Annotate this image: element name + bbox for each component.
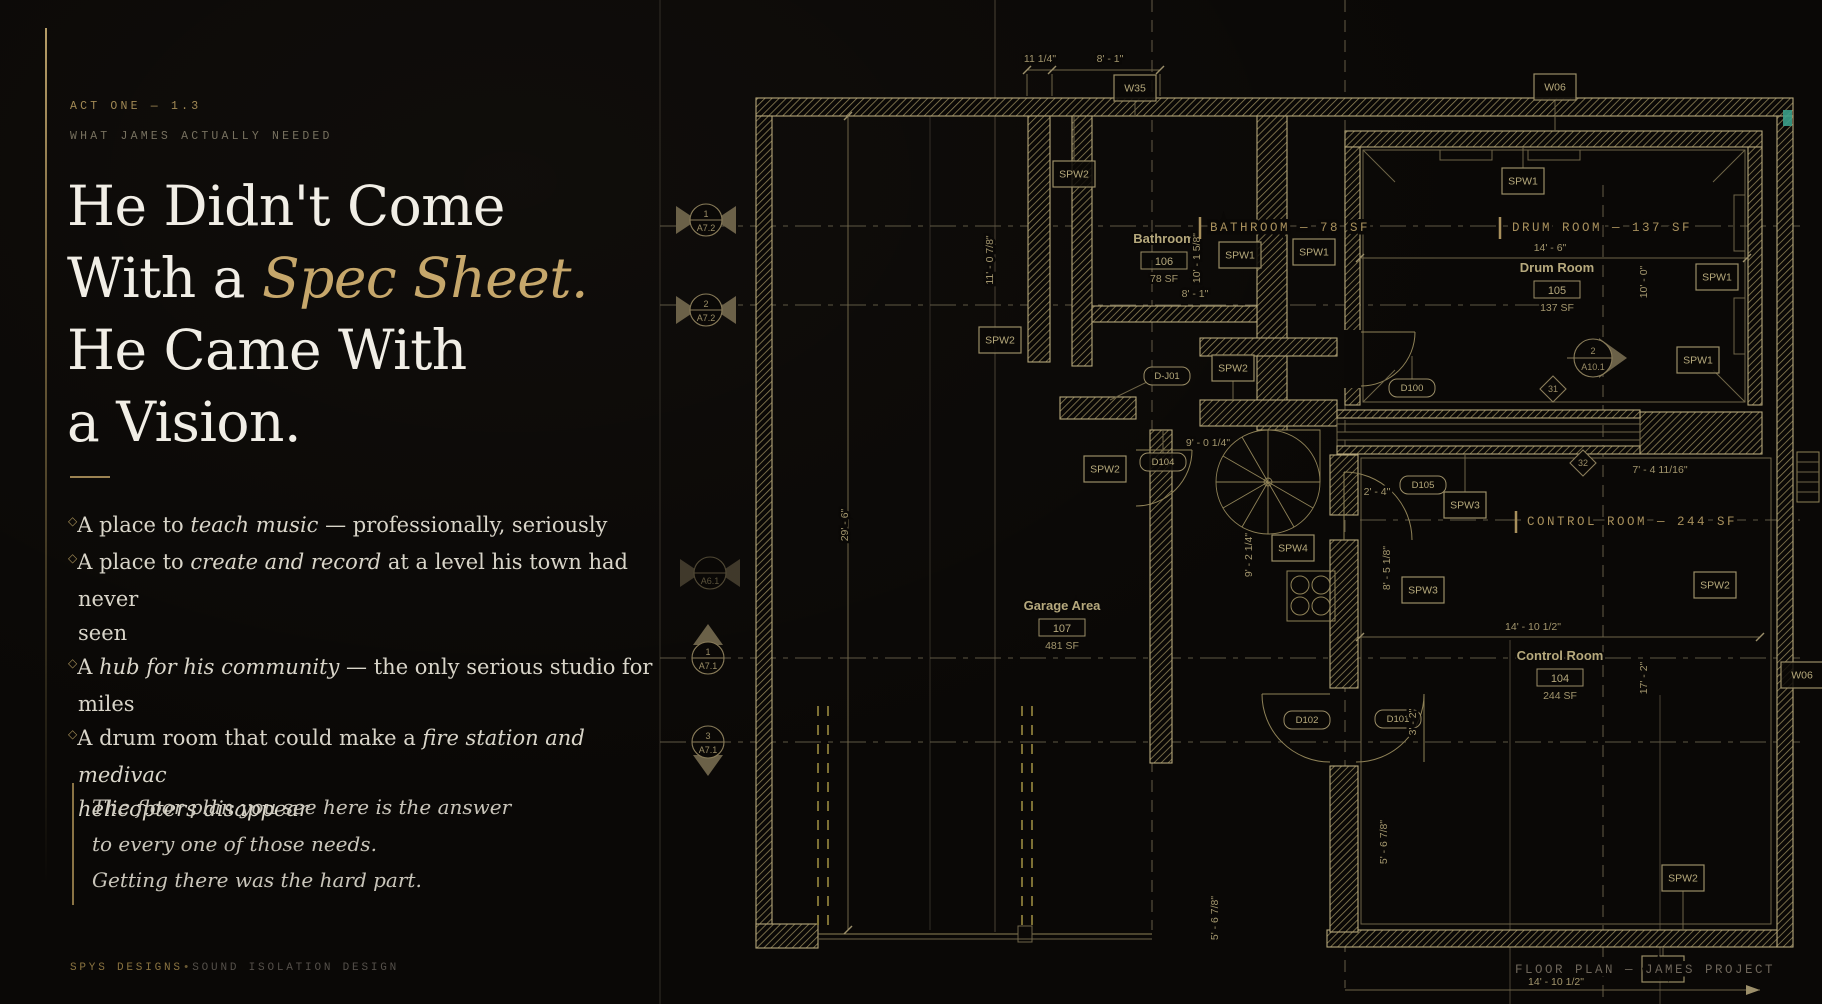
list-item: ◇A place to create and record at a level… — [68, 545, 668, 650]
slide-footer: SPYS DESIGNS•SOUND ISOLATION DESIGN — [70, 962, 399, 974]
svg-text:Control Room: Control Room — [1517, 648, 1604, 663]
svg-text:SPW1: SPW1 — [1225, 250, 1255, 262]
svg-text:FLOOR PLAN — JAMES PROJECT: FLOOR PLAN — JAMES PROJECT — [1515, 963, 1775, 977]
diamond-bullet-icon: ◇ — [68, 656, 77, 670]
wall-type-tag: SPW2 — [1212, 355, 1254, 381]
wall-type-tag: SPW2 — [1662, 865, 1704, 891]
wall-type-tag: SPW1 — [1677, 347, 1719, 373]
dimension-label: 7' - 4 11/16" — [1632, 464, 1687, 476]
section-marker: 2A10.1 — [1567, 338, 1627, 378]
dimension-label: 8' - 1" — [1097, 53, 1124, 65]
headline-divider — [70, 476, 110, 478]
svg-text:SPW2: SPW2 — [1700, 580, 1730, 592]
svg-text:D101: D101 — [1387, 714, 1410, 725]
svg-text:D104: D104 — [1152, 457, 1175, 468]
keynote-diamond-tag: 31 — [1540, 376, 1566, 402]
svg-text:W06: W06 — [1791, 670, 1813, 682]
dimension-label: 11' - 0 7/8" — [984, 235, 996, 285]
wall-type-tag: SPW2 — [1084, 456, 1126, 482]
door-tag: D104 — [1140, 453, 1186, 471]
wall-type-tag: SPW1 — [1502, 168, 1544, 194]
section-eyebrow: WHAT JAMES ACTUALLY NEEDED — [70, 130, 333, 143]
list-item: ◇A hub for his community — the only seri… — [68, 650, 668, 721]
door-tag: D105 — [1400, 476, 1446, 494]
svg-text:SPW2: SPW2 — [1668, 873, 1698, 885]
overlay-label: CONTROL ROOM — 244 SF — [1516, 511, 1737, 533]
svg-text:SPW2: SPW2 — [1218, 363, 1248, 375]
svg-text:105: 105 — [1548, 285, 1566, 297]
svg-text:D100: D100 — [1401, 383, 1424, 394]
dimension-label: 8' - 5 1/8" — [1381, 546, 1393, 591]
svg-text:W35: W35 — [1124, 83, 1146, 95]
svg-text:104: 104 — [1551, 673, 1569, 685]
dimension-label: 2' - 4" — [1364, 486, 1391, 498]
grid-marker: 3A7.1 — [692, 726, 724, 776]
room-label: Garage Area107481 SF — [1024, 598, 1102, 652]
page-title: He Didn't Come With a Spec Sheet. He Cam… — [67, 170, 588, 458]
list-item: ◇A place to teach music — professionally… — [68, 508, 668, 545]
door-tag: D102 — [1284, 711, 1330, 729]
diamond-bullet-icon: ◇ — [68, 551, 77, 565]
svg-text:106: 106 — [1155, 256, 1173, 268]
room-label: Control Room104244 SF — [1517, 648, 1604, 702]
svg-text:1: 1 — [703, 209, 708, 219]
room-label: Bathroom10678 SF — [1133, 231, 1194, 285]
svg-text:A7.2: A7.2 — [697, 223, 716, 233]
svg-text:SPW3: SPW3 — [1408, 585, 1438, 597]
overlay-label: DRUM ROOM — 137 SF — [1500, 217, 1692, 239]
dimension-label: 14' - 10 1/2" — [1528, 976, 1584, 988]
svg-text:107: 107 — [1053, 623, 1071, 635]
svg-text:Garage Area: Garage Area — [1024, 598, 1102, 613]
door-tag: D-J01 — [1144, 367, 1190, 385]
dimension-label: 11 1/4" — [1024, 53, 1056, 65]
wall-type-tag: SPW2 — [1053, 161, 1095, 187]
footer-separator-icon: • — [183, 962, 192, 974]
svg-text:244 SF: 244 SF — [1543, 690, 1577, 702]
wall-type-tag: SPW4 — [1272, 535, 1314, 561]
svg-text:CONTROL ROOM — 244 SF: CONTROL ROOM — 244 SF — [1527, 515, 1737, 529]
svg-text:A7.1: A7.1 — [699, 661, 718, 671]
plan-details — [1287, 110, 1819, 621]
svg-text:78 SF: 78 SF — [1150, 273, 1178, 285]
dimension-label: 14' - 6" — [1534, 242, 1567, 254]
wall-type-tag: SPW2 — [979, 327, 1021, 353]
svg-text:Drum Room: Drum Room — [1520, 260, 1594, 275]
dimension-lines — [844, 66, 1782, 995]
wall-type-tag: SPW1 — [1293, 239, 1335, 265]
grid-marker: 1A7.2 — [676, 204, 736, 236]
room-label: Drum Room105137 SF — [1520, 260, 1594, 314]
wall-type-tag: SPW1 — [1219, 242, 1261, 268]
act-kicker: ACT ONE — 1.3 — [70, 100, 201, 113]
wall-type-tag: SPW1 — [1696, 264, 1738, 290]
svg-text:D102: D102 — [1296, 715, 1319, 726]
svg-text:481 SF: 481 SF — [1045, 640, 1079, 652]
wall-type-tag: SPW2 — [1694, 572, 1736, 598]
svg-text:A6.1: A6.1 — [701, 576, 720, 586]
grid-marker: A6.1 — [680, 557, 740, 589]
svg-text:SPW2: SPW2 — [1059, 169, 1089, 181]
dimension-label: 10' - 0" — [1638, 265, 1650, 298]
wall-type-tag: SPW3 — [1444, 492, 1486, 518]
svg-text:SPW2: SPW2 — [985, 335, 1015, 347]
svg-text:DRUM ROOM — 137 SF: DRUM ROOM — 137 SF — [1512, 221, 1692, 235]
svg-text:32: 32 — [1578, 458, 1588, 468]
brand-name: SPYS DESIGNS — [70, 962, 183, 974]
headline-line-2: With a Spec Sheet. — [67, 242, 588, 314]
footer-tagline: SOUND ISOLATION DESIGN — [192, 962, 399, 974]
svg-text:SPW1: SPW1 — [1299, 247, 1329, 259]
window-tag: W35 — [1114, 75, 1156, 101]
svg-text:Bathroom: Bathroom — [1133, 231, 1194, 246]
svg-text:A7.2: A7.2 — [697, 313, 716, 323]
svg-text:137 SF: 137 SF — [1540, 302, 1574, 314]
dimension-label: 5' - 6 7/8" — [1378, 820, 1390, 865]
dimension-label: 8' - 1" — [1182, 288, 1209, 300]
svg-text:SPW1: SPW1 — [1683, 355, 1713, 367]
svg-text:1: 1 — [705, 647, 710, 657]
diamond-bullet-icon: ◇ — [68, 514, 77, 528]
door-tag: D100 — [1389, 379, 1435, 397]
svg-text:SPW1: SPW1 — [1508, 176, 1538, 188]
svg-text:SPW2: SPW2 — [1090, 464, 1120, 476]
headline-line-1: He Didn't Come — [67, 170, 588, 242]
svg-text:31: 31 — [1548, 384, 1558, 394]
svg-text:3: 3 — [705, 731, 710, 741]
headline-line-4: a Vision. — [67, 386, 588, 458]
svg-text:SPW1: SPW1 — [1702, 272, 1732, 284]
needs-list: ◇A place to teach music — professionally… — [68, 508, 668, 826]
dimension-label: 17' - 2" — [1638, 661, 1650, 694]
svg-text:A7.1: A7.1 — [699, 745, 718, 755]
slide: Bathroom10678 SFDrum Room105137 SFGarage… — [0, 0, 1822, 1004]
dimension-label: 3' - 2" — [1407, 708, 1419, 735]
grid-marker: 1A7.1 — [692, 624, 724, 674]
svg-text:2: 2 — [1590, 346, 1595, 356]
window-tag: W06 — [1534, 74, 1576, 100]
svg-text:2: 2 — [703, 299, 708, 309]
overlay-label: FLOOR PLAN — JAMES PROJECT — [1515, 963, 1775, 977]
dimension-label: 10' - 1 5/8" — [1191, 233, 1203, 283]
reference-grid — [660, 0, 1800, 1004]
diamond-bullet-icon: ◇ — [68, 727, 77, 741]
headline-line-3: He Came With — [67, 314, 588, 386]
svg-text:D105: D105 — [1412, 480, 1435, 491]
dimension-label: 29' - 6" — [839, 508, 851, 541]
floorplan-quote: The floor plan you see here is the answe… — [72, 783, 511, 905]
headline-emphasis: Spec Sheet. — [262, 246, 588, 310]
dimension-label: 5' - 6 7/8" — [1209, 896, 1221, 941]
dimension-label: 9' - 0 1/4" — [1186, 437, 1231, 449]
svg-text:A10.1: A10.1 — [1581, 362, 1605, 372]
dimension-label: 9' - 2 1/4" — [1243, 533, 1255, 578]
spiral-stair — [1216, 430, 1320, 534]
svg-text:D-J01: D-J01 — [1154, 371, 1179, 382]
window-tag: W06 — [1781, 662, 1822, 688]
svg-text:SPW4: SPW4 — [1278, 543, 1308, 555]
grid-marker: 2A7.2 — [676, 294, 736, 326]
accent-rule — [45, 28, 47, 884]
wall-type-tag: SPW3 — [1402, 577, 1444, 603]
svg-text:SPW3: SPW3 — [1450, 500, 1480, 512]
headline-line-2-pre: With a — [67, 246, 262, 310]
svg-text:BATHROOM — 78 SF: BATHROOM — 78 SF — [1210, 221, 1370, 235]
dimension-label: 14' - 10 1/2" — [1505, 621, 1561, 633]
svg-text:W06: W06 — [1544, 82, 1566, 94]
